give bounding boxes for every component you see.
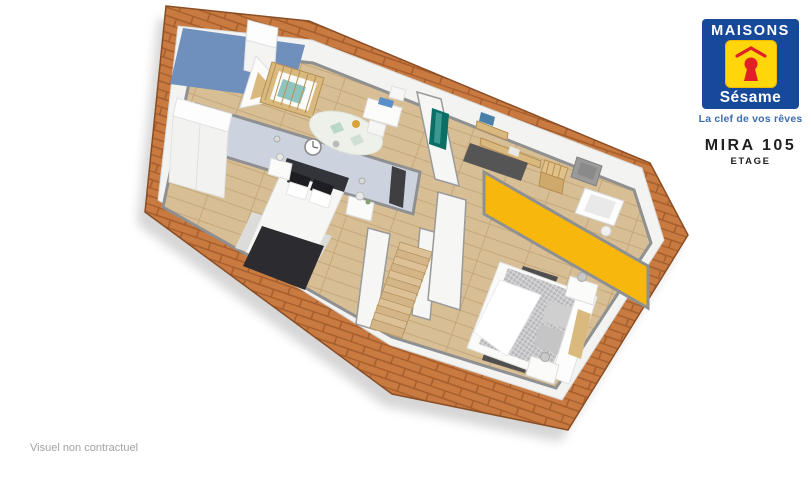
logo-title: MAISONS <box>711 24 790 39</box>
floorplan-page: MAISONS Sésame La clef de vos rêves MIRA… <box>0 0 811 480</box>
master-door-opening <box>389 166 406 208</box>
plan-level-label: ETAGE <box>690 156 811 167</box>
disclaimer-text: Visuel non contractuel <box>30 442 138 454</box>
bathroom-bin <box>601 226 611 236</box>
master-wardrobe <box>169 98 232 198</box>
wall-sconce-left <box>274 136 280 142</box>
maisons-sesame-logo: MAISONS Sésame <box>702 19 799 109</box>
hall-teal-panel <box>429 108 449 150</box>
wall-clock <box>305 139 321 155</box>
toy-duck <box>352 120 360 128</box>
brand-column: MAISONS Sésame La clef de vos rêves MIRA… <box>690 19 811 167</box>
brand-tagline: La clef de vos rêves <box>690 113 811 125</box>
plan-model-name: MIRA 105 <box>690 137 811 155</box>
keyhole-roof-icon <box>731 44 771 84</box>
wall-sconce-right <box>359 178 365 184</box>
logo-subtitle: Sésame <box>720 90 782 106</box>
toy-teddy <box>333 141 340 148</box>
logo-yellow-badge <box>725 40 777 88</box>
